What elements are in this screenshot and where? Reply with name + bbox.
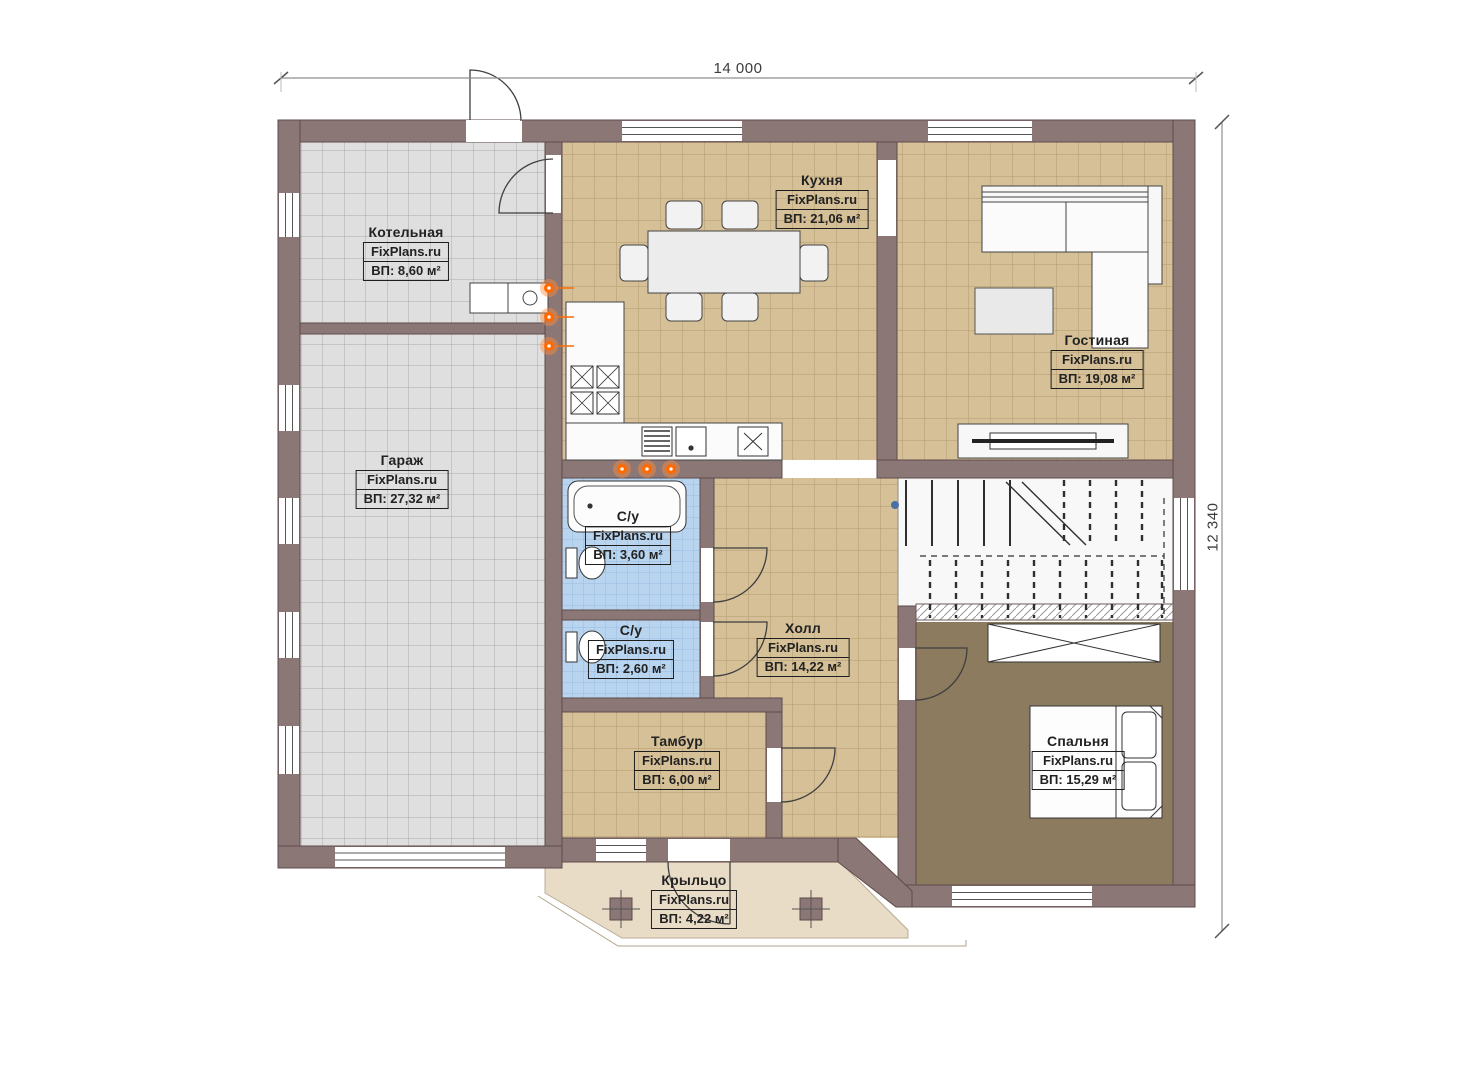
floor-plan-drawing: [0, 0, 1473, 1080]
wall-bedroom-left: [898, 606, 916, 885]
stair-start-dot: [891, 501, 899, 509]
door-gap-bathroom-1: [701, 548, 713, 602]
floor-plan-canvas: 14 000 12 340 Котельная FixPlans.ru ВП: …: [0, 0, 1473, 1080]
floor-garage: [300, 334, 545, 846]
chair-icon: [722, 293, 758, 321]
window-bottom-bedroom: [952, 886, 1092, 906]
chair-icon: [666, 293, 702, 321]
coffee-table-icon: [975, 288, 1053, 334]
bed-icon: [1030, 706, 1162, 818]
wardrobe-icon: [988, 624, 1160, 662]
door-gap-boiler: [546, 155, 561, 213]
door-gap-top-entrance: [466, 120, 522, 142]
chair-icon: [666, 201, 702, 229]
sofa-chaise: [1092, 252, 1148, 348]
wall-garage-divider: [545, 142, 562, 846]
window-right-stairs: [1174, 498, 1194, 590]
window-left-1: [279, 193, 299, 237]
heating-riser-icon: [662, 460, 680, 478]
wall-bedroom-top-hatched: [916, 604, 1173, 620]
window-left-4: [279, 612, 299, 658]
chair-icon: [800, 245, 828, 281]
window-left-3: [279, 498, 299, 544]
heating-riser-icon: [613, 460, 631, 478]
toilet-icon: [566, 631, 605, 663]
boiler-unit-icon: [470, 283, 548, 313]
door-gap-porch-entrance: [668, 839, 730, 861]
pillow-icon: [1122, 712, 1156, 758]
window-top-kitchen: [622, 121, 742, 141]
dimension-height-label: 12 340: [1205, 503, 1222, 552]
garage-gate-opening: [335, 847, 505, 867]
wall-bathroom-divider: [562, 610, 700, 620]
floor-staircase: [898, 478, 1173, 606]
door-gap-bedroom: [899, 648, 915, 700]
toilet-icon: [566, 547, 605, 579]
window-hall-bottom: [596, 839, 646, 861]
wall-under-living: [877, 460, 1173, 478]
appliance-x-icon: [738, 427, 768, 456]
chair-icon: [722, 201, 758, 229]
door-gap-bathroom-2: [701, 622, 713, 676]
chair-icon: [620, 245, 648, 281]
door-gap-tambur: [767, 748, 781, 802]
heating-riser-icon: [638, 460, 656, 478]
window-left-2: [279, 385, 299, 431]
window-left-5: [279, 726, 299, 774]
sofa-back: [982, 186, 1150, 202]
dimension-width-label: 14 000: [714, 60, 763, 77]
sofa-side-back: [1148, 186, 1162, 284]
wall-tambur-top: [562, 698, 782, 712]
floor-bathroom-2: [562, 620, 700, 698]
window-top-living: [928, 121, 1032, 141]
pillow-icon: [1122, 762, 1156, 810]
opening-kitchen-living: [878, 160, 896, 236]
bathtub-icon: [568, 481, 686, 532]
dining-table-icon: [648, 231, 800, 293]
wall-boiler-divider: [300, 323, 545, 334]
